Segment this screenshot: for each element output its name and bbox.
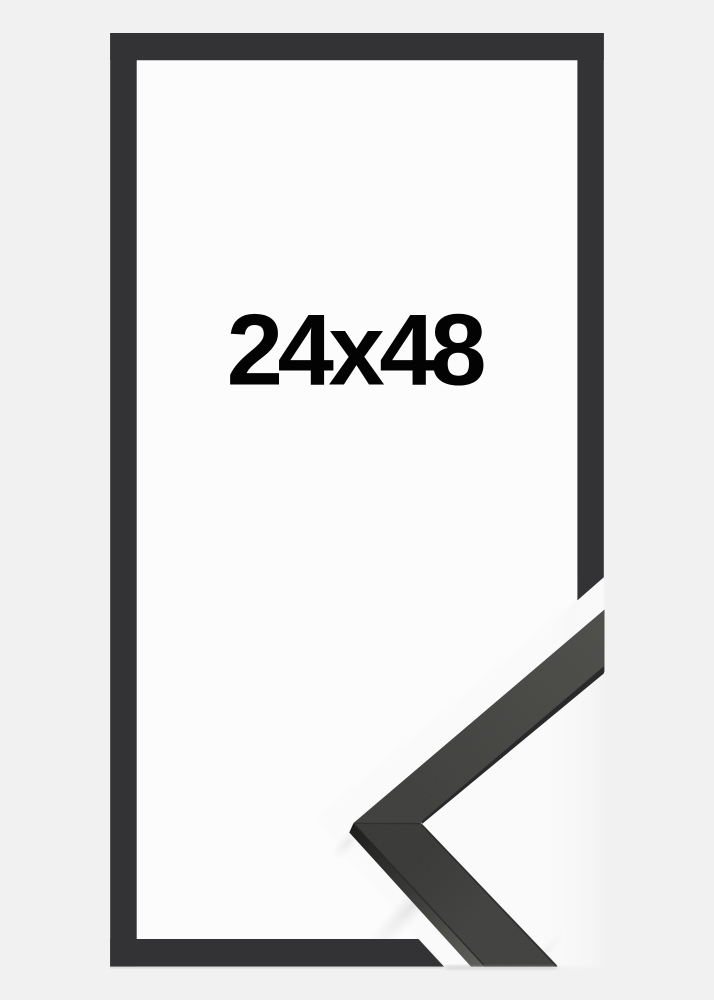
- svg-text:24x48: 24x48: [227, 292, 484, 406]
